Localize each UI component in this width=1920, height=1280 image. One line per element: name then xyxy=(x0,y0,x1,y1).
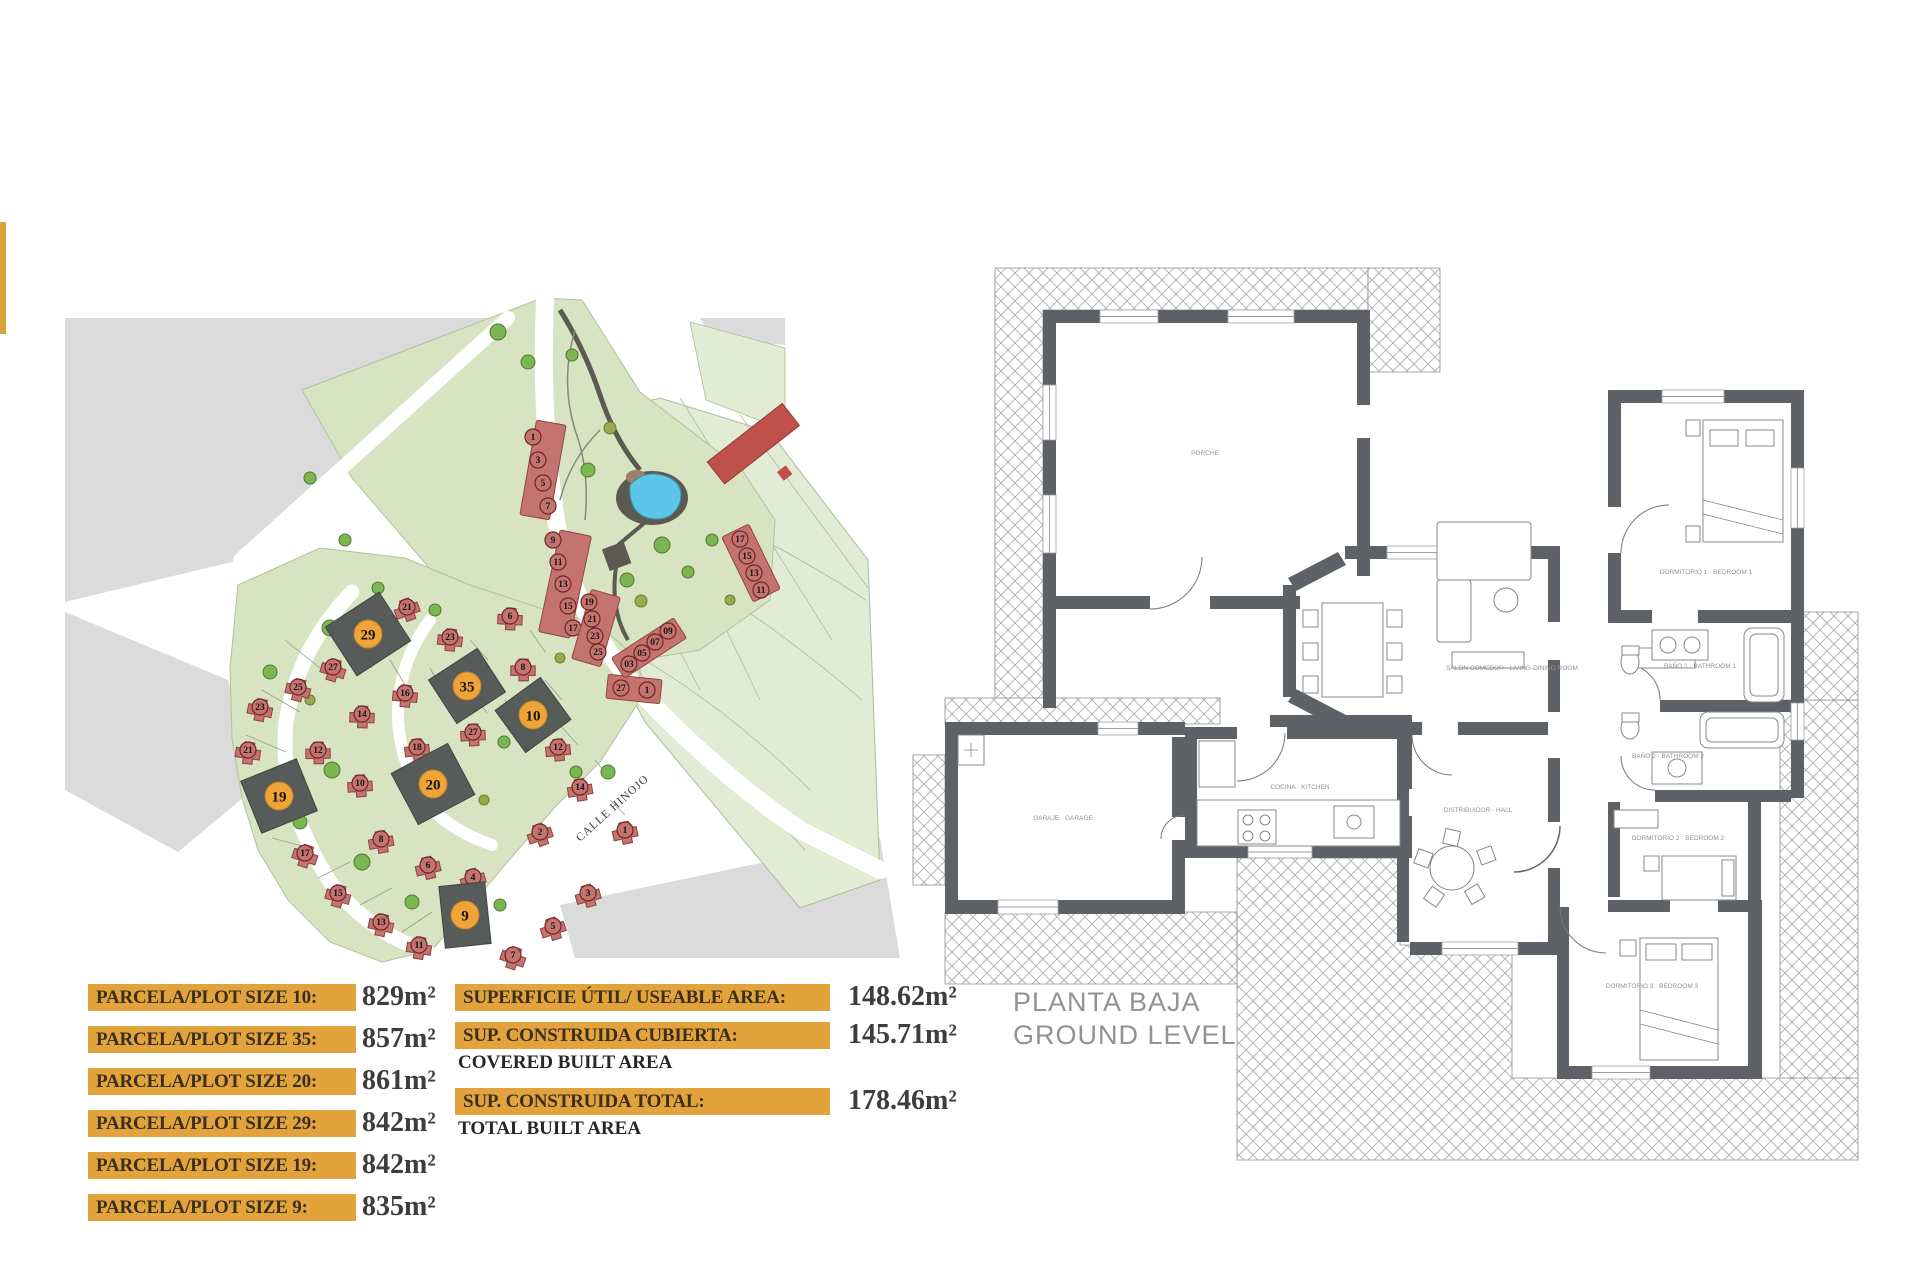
map-number: 9 xyxy=(461,909,469,925)
tree-icon xyxy=(490,324,506,340)
parcel-bar-29: PARCELA/PLOT SIZE 29: xyxy=(88,1110,356,1137)
tree-icon xyxy=(521,355,535,369)
tree-icon xyxy=(635,595,647,607)
parcel-bar-19: PARCELA/PLOT SIZE 19: xyxy=(88,1152,356,1179)
tree-icon xyxy=(498,736,510,748)
map-number: 23 xyxy=(445,633,455,643)
map-number: 11 xyxy=(757,586,766,596)
map-number: 05 xyxy=(637,649,647,659)
brochure-page: 1357911131517192123252711715131109070503… xyxy=(0,0,1920,1280)
map-number: 20 xyxy=(426,778,441,794)
map-number: 03 xyxy=(624,660,634,670)
map-number: 6 xyxy=(426,861,431,871)
tree-icon xyxy=(601,765,615,779)
covered-area-sublabel: COVERED BUILT AREA xyxy=(458,1052,672,1074)
map-number: 3 xyxy=(586,889,591,899)
map-number: 8 xyxy=(379,835,384,845)
map-number: 21 xyxy=(402,603,412,613)
useable-area-value: 148.62m² xyxy=(848,982,957,1014)
useable-area-bar: SUPERFICIE ÚTIL/ USEABLE AREA: xyxy=(455,984,830,1011)
map-number: 23 xyxy=(255,703,265,713)
covered-area-bar: SUP. CONSTRUIDA CUBIERTA: xyxy=(455,1022,830,1049)
map-number: 8 xyxy=(521,663,526,673)
hall-table xyxy=(1430,846,1474,890)
map-number: 27 xyxy=(616,684,626,694)
map-number: 15 xyxy=(333,889,343,899)
map-number: 2 xyxy=(538,828,543,838)
map-number: 12 xyxy=(553,743,563,753)
map-number: 25 xyxy=(293,683,303,693)
parcel-bar-20: PARCELA/PLOT SIZE 20: xyxy=(88,1068,356,1095)
map-number: 11 xyxy=(415,941,424,951)
parcel-bar-10: PARCELA/PLOT SIZE 10: xyxy=(88,984,356,1011)
tree-icon xyxy=(372,582,384,594)
parcel-value-20: 861m² xyxy=(362,1066,436,1098)
map-number: 10 xyxy=(526,709,541,725)
room-label-bathroom1: BAÑO 1 · BATHROOM 1 xyxy=(1664,661,1736,670)
map-number: 9 xyxy=(551,536,556,546)
map-number: 5 xyxy=(541,479,546,489)
room-label-living: SALÓN COMEDOR · LIVING-DINING ROOM xyxy=(1446,663,1578,672)
map-number: 17 xyxy=(568,624,578,634)
tree-icon xyxy=(555,653,565,663)
parcel-value-19: 842m² xyxy=(362,1150,436,1182)
parcel-value-29: 842m² xyxy=(362,1108,436,1140)
parcel-value-9: 835m² xyxy=(362,1192,436,1224)
room-label-garage: GARAJE · GARAGE xyxy=(1033,815,1093,822)
map-number: 15 xyxy=(563,602,573,612)
floorplan-title-line1: PLANTA BAJA xyxy=(1013,986,1237,1019)
tree-icon xyxy=(620,573,634,587)
room-label-bedroom1: DORMITORIO 1 · BEDROOM 1 xyxy=(1660,569,1753,576)
map-number: 10 xyxy=(355,779,365,789)
map-number: 16 xyxy=(400,689,410,699)
tree-icon xyxy=(479,795,489,805)
tree-icon xyxy=(324,762,340,778)
map-number: 29 xyxy=(361,628,376,644)
map-number: 3 xyxy=(536,456,541,466)
map-number: 15 xyxy=(742,552,752,562)
parcel-bar-9: PARCELA/PLOT SIZE 9: xyxy=(88,1194,356,1221)
map-number: 4 xyxy=(471,873,476,883)
tree-icon xyxy=(494,899,506,911)
tree-icon xyxy=(405,895,419,909)
map-number: 13 xyxy=(376,918,386,928)
map-number: 7 xyxy=(511,951,516,961)
dining-table xyxy=(1322,603,1383,697)
map-number: 19 xyxy=(272,790,287,806)
map-number: 09 xyxy=(663,627,673,637)
room-label-bedroom3: DORMITORIO 3 · BEDROOM 3 xyxy=(1606,983,1699,990)
map-number: 23 xyxy=(590,632,600,642)
side-table xyxy=(1494,588,1518,612)
room-label-porch: PORCHE xyxy=(1191,450,1219,457)
map-number: 17 xyxy=(735,535,745,545)
map-number: 12 xyxy=(313,746,323,756)
map-number: 27 xyxy=(468,728,478,738)
map-number: 19 xyxy=(584,598,594,608)
tree-icon xyxy=(706,534,718,546)
room-label-bedroom2: DORMITORIO 2 · BEDROOM 2 xyxy=(1632,835,1725,842)
map-number: 21 xyxy=(243,746,253,756)
map-number: 6 xyxy=(508,612,513,622)
tree-icon xyxy=(604,422,616,434)
map-number: 5 xyxy=(551,922,556,932)
pool xyxy=(630,474,681,519)
parcel-bar-35: PARCELA/PLOT SIZE 35: xyxy=(88,1026,356,1053)
map-number: 27 xyxy=(328,663,338,673)
room-label-bathroom2: BAÑO 2 · BATHROOM 2 xyxy=(1632,751,1704,760)
tree-icon xyxy=(654,537,670,553)
tree-icon xyxy=(566,349,578,361)
map-number: 11 xyxy=(554,558,563,568)
parcel-value-35: 857m² xyxy=(362,1024,436,1056)
total-area-sublabel: TOTAL BUILT AREA xyxy=(458,1118,641,1140)
tree-icon xyxy=(339,534,351,546)
tree-icon xyxy=(354,854,370,870)
covered-area-value: 145.71m² xyxy=(848,1020,957,1052)
tree-icon xyxy=(570,766,582,778)
total-area-bar: SUP. CONSTRUIDA TOTAL: xyxy=(455,1088,830,1115)
tree-icon xyxy=(429,604,441,616)
sofa xyxy=(1437,522,1531,580)
map-number: 21 xyxy=(587,615,597,625)
map-number: 14 xyxy=(575,783,585,793)
map-number: 1 xyxy=(531,433,536,443)
map-number: 14 xyxy=(357,710,367,720)
map-number: 1 xyxy=(645,686,650,696)
map-number: 13 xyxy=(558,580,568,590)
total-area-value: 178.46m² xyxy=(848,1086,957,1118)
tree-icon xyxy=(725,595,735,605)
map-number: 35 xyxy=(460,680,475,696)
desk xyxy=(1614,810,1658,828)
floorplan-title: PLANTA BAJA GROUND LEVEL xyxy=(1013,986,1237,1052)
map-number: 7 xyxy=(546,502,551,512)
tree-icon xyxy=(263,665,277,679)
map-number: 18 xyxy=(412,743,422,753)
room-label-hall: DISTRIBUIDOR · HALL xyxy=(1444,807,1513,814)
tree-icon xyxy=(304,472,316,484)
parcel-value-10: 829m² xyxy=(362,982,436,1014)
fridge xyxy=(1199,741,1235,787)
map-number: 13 xyxy=(749,569,759,579)
room-label-kitchen: COCINA · KITCHEN xyxy=(1270,784,1330,791)
map-number: 1 xyxy=(623,826,628,836)
map-number: 17 xyxy=(300,849,310,859)
tree-icon xyxy=(682,566,694,578)
floorplan-title-line2: GROUND LEVEL xyxy=(1013,1019,1237,1052)
map-number: 25 xyxy=(593,648,603,658)
tree-icon xyxy=(581,463,595,477)
map-number: 07 xyxy=(650,638,660,648)
